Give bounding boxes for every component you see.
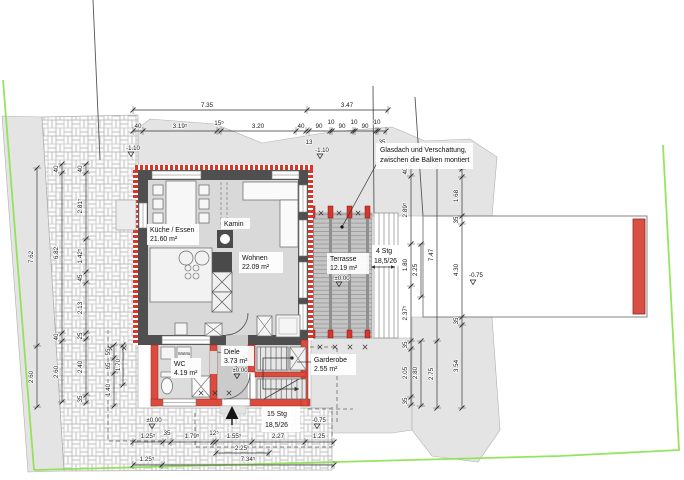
terrain-right-low <box>412 317 500 462</box>
house <box>116 165 313 414</box>
dim-label: 1.68 <box>453 189 460 202</box>
site-plan-drawing: 7.35 3.47 40 3.19⁵ 15⁵ 3.20 40 90 10 90 … <box>0 0 684 480</box>
dim-label: 3.19⁵ <box>173 123 188 130</box>
dim-label: 40 <box>134 123 142 130</box>
label-outdoor-stairs-2: 18,5/26 <box>374 258 397 265</box>
dim-label: 10 <box>350 119 358 126</box>
dim-label: 3.47 <box>341 102 354 109</box>
dim-label: 10 <box>327 119 335 126</box>
label-indoor-stairs-1: 15 Stg <box>267 411 287 418</box>
dim-label: 1.42⁵ <box>77 248 84 263</box>
level-garden: -0.75 <box>469 272 484 279</box>
label-outdoor-stairs-1: 4 Stg <box>376 248 392 255</box>
room-area-wc: 4.19 m² <box>174 370 198 377</box>
dim-label: 1.80 <box>402 258 409 271</box>
dim-label: 4.30 <box>453 263 460 276</box>
dim-label: 35 <box>402 397 409 405</box>
dim-label: 45 <box>77 274 84 282</box>
level-site-left: -1.10 <box>126 145 141 152</box>
dim-label: 90 <box>315 123 323 130</box>
dim-label: 90 <box>338 123 346 130</box>
dim-label: 1.70 <box>115 358 122 371</box>
dim-label: 40 <box>53 165 60 173</box>
level-entry-outside: ±0.00 <box>146 417 162 424</box>
dim-label: 2.13 <box>77 301 84 314</box>
label-kamin: Kamin <box>224 221 244 228</box>
outdoor-stairs <box>374 213 398 338</box>
label-glass-roof-2: zwischen die Balken montiert <box>380 157 469 164</box>
dim-label: 1.25⁵ <box>141 433 156 440</box>
dim-label: 2.25 <box>235 445 248 452</box>
dim-label: 35 <box>453 317 460 325</box>
room-area-kueche: 21.60 m² <box>150 236 178 243</box>
dim-label: 2.81⁵ <box>77 198 84 213</box>
dim-label: 7.34⁵ <box>241 456 256 463</box>
room-area-wohnen: 22.09 m² <box>242 264 270 271</box>
dim-label: 35 <box>163 430 171 437</box>
dim-label: 90 <box>361 123 369 130</box>
garden-wall-red-bar <box>633 219 645 314</box>
label-indoor-stairs-2: 18,5/26 <box>265 422 288 429</box>
insulation-left <box>133 170 138 345</box>
level-site-center: -1.10 <box>315 147 330 154</box>
door-opening-wc <box>210 351 217 374</box>
dim-label: 13 <box>305 139 313 146</box>
room-area-garderobe: 2.55 m² <box>314 366 338 373</box>
dim-label: 1.25⁵ <box>140 456 155 463</box>
dim-label: 1.79⁵ <box>185 433 200 440</box>
level-diele: ±0.00 <box>232 367 248 374</box>
dim-label: 35 <box>453 216 460 224</box>
floor-plan-canvas: 7.35 3.47 40 3.19⁵ 15⁵ 3.20 40 90 10 90 … <box>0 0 684 480</box>
dim-label: 2.25 <box>412 263 419 276</box>
dim-label: 2.05 <box>402 366 409 379</box>
dim-label: 7.35 <box>201 102 214 109</box>
dim-label: 25 <box>77 332 84 340</box>
dim-label: 40 <box>53 333 60 341</box>
dim-label: 2.75 <box>428 367 435 380</box>
dim-label: 7.47 <box>428 248 435 261</box>
dim-label: 3.54 <box>453 359 460 372</box>
room-area-diele: 3.73 m² <box>224 358 248 365</box>
dim-label: 35 <box>402 341 409 349</box>
insulation-top <box>134 165 313 170</box>
wall-opening <box>226 335 248 345</box>
dim-label: 2.37⁵ <box>402 305 409 320</box>
dim-label: 40 <box>297 123 305 130</box>
room-name-wc: WC <box>174 361 186 368</box>
dim-label: 2.80 <box>412 366 419 379</box>
dim-label: 1.55⁵ <box>227 433 242 440</box>
dim-label: 2.89⁵ <box>402 202 409 217</box>
dim-label: 3.20 <box>252 123 265 130</box>
level-entry-street: -0.75 <box>312 417 327 424</box>
dim-label: 2.60 <box>28 370 35 383</box>
room-name-diele: Diele <box>224 349 240 356</box>
dim-label: 15⁵ <box>214 120 224 127</box>
insulation-right <box>308 170 313 340</box>
kitchen-island <box>150 248 212 302</box>
dim-label: 1.40 <box>105 383 112 396</box>
room-name-kueche: Küche / Essen <box>150 227 195 234</box>
dim-label: 2.27 <box>272 433 285 440</box>
label-glass-roof-1: Glasdach und Verschattung, <box>380 147 467 154</box>
label-wama: WaMa <box>178 351 191 356</box>
dim-label: 2.60 <box>53 365 60 378</box>
room-name-wohnen: Wohnen <box>242 255 268 262</box>
dim-label: 55 <box>105 348 112 356</box>
room-name-garderobe: Garderobe <box>314 357 347 364</box>
dim-label: 12⁵ <box>209 430 219 437</box>
dim-label: 7.62 <box>28 250 35 263</box>
dim-label: 10 <box>373 119 381 126</box>
dim-label: 35 <box>77 395 84 403</box>
dim-label: 2.40 <box>77 360 84 373</box>
level-terrasse: ±0.00 <box>334 275 350 282</box>
toilet <box>162 378 173 394</box>
dim-label: 65 <box>105 362 112 370</box>
room-area-terrasse: 12.19 m² <box>330 265 358 272</box>
dim-label: 6.82 <box>53 246 60 259</box>
room-name-terrasse: Terrasse <box>330 256 357 263</box>
dim-label: 40 <box>77 165 84 173</box>
dim-label: 1.25 <box>313 433 326 440</box>
dining-set <box>153 181 209 225</box>
window-sill-left <box>116 200 136 230</box>
